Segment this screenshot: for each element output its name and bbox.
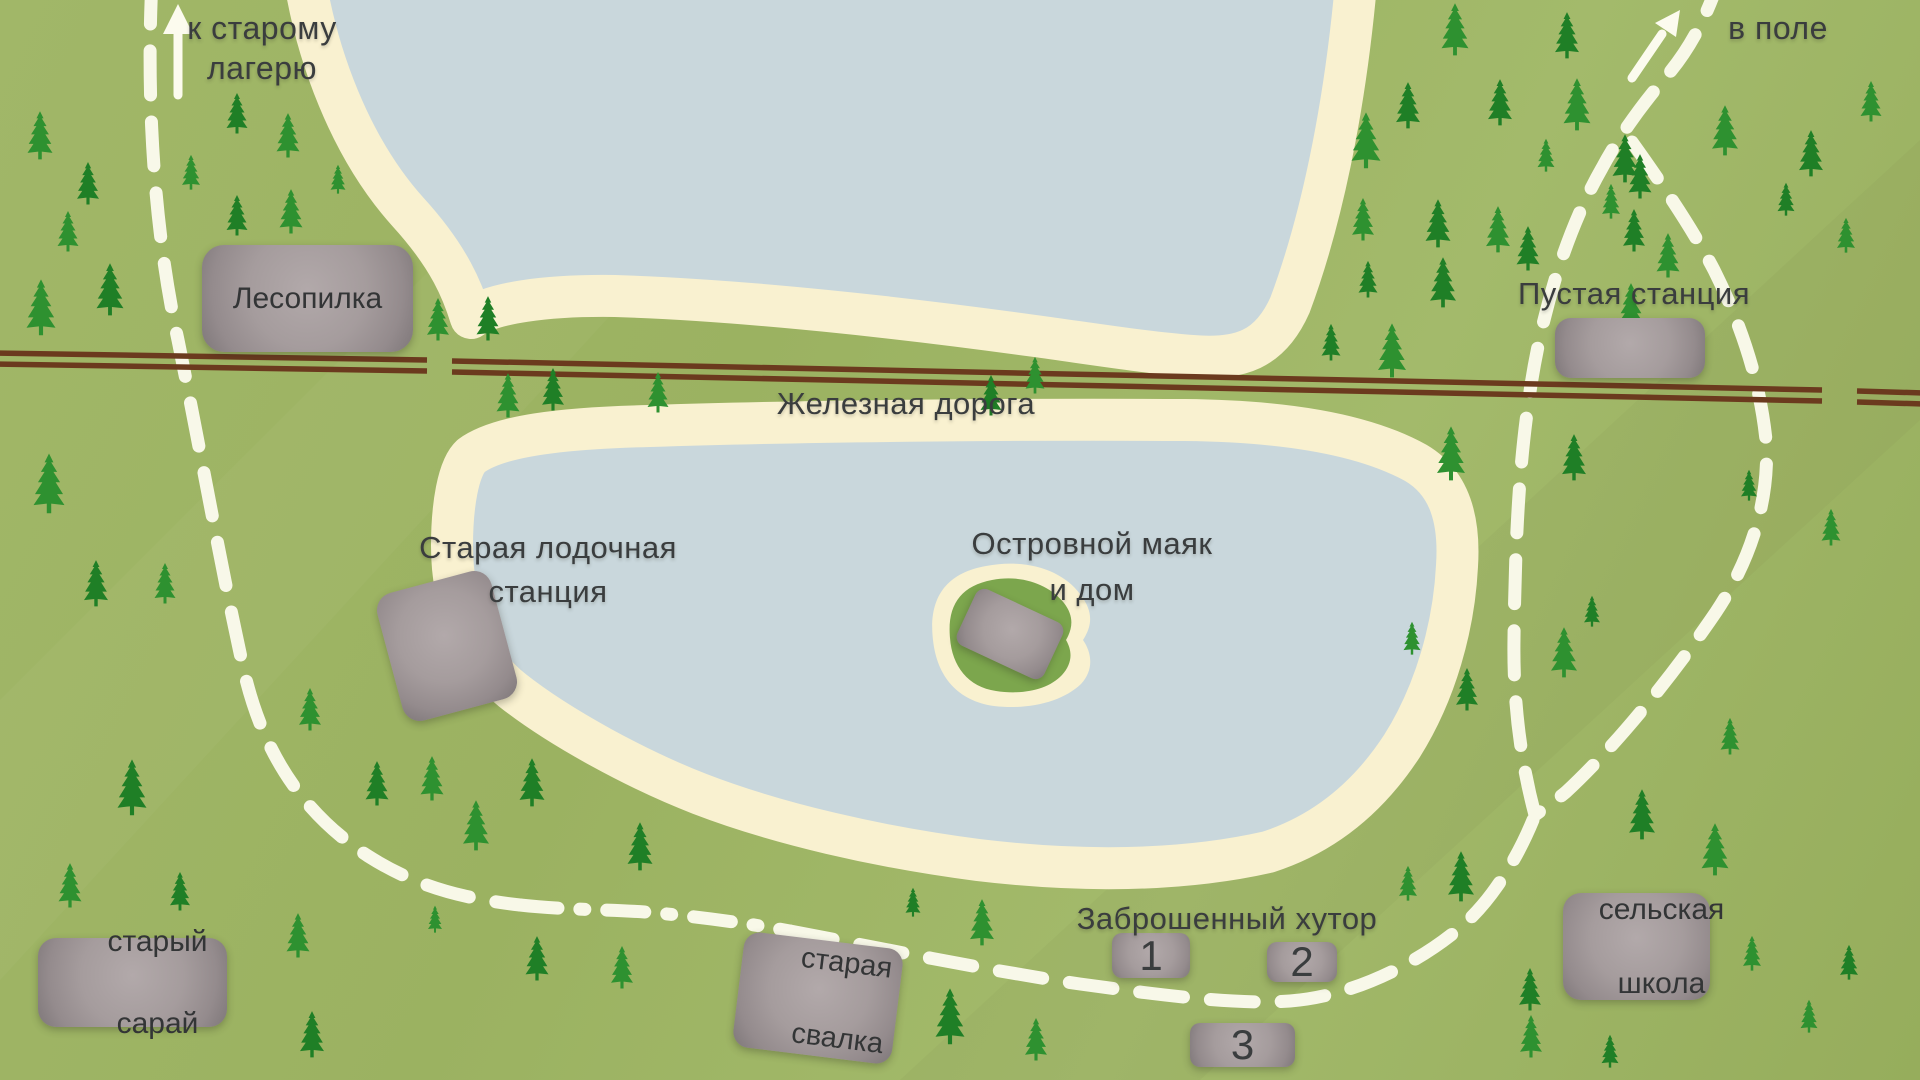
pine-tree-icon — [1520, 1015, 1542, 1057]
farmstead-building-2: 2 — [1267, 942, 1337, 982]
upper-lake — [302, 0, 1358, 357]
pine-tree-icon — [1426, 199, 1451, 247]
village-school-building: сельская школа — [1563, 893, 1710, 1000]
pine-tree-icon — [182, 155, 200, 190]
pine-tree-icon — [1822, 509, 1841, 546]
pine-tree-icon — [1378, 323, 1406, 377]
pine-tree-icon — [300, 1011, 324, 1057]
sawmill-label: Лесопилка — [233, 279, 382, 319]
arrow-to-field-shaft — [1632, 34, 1662, 78]
farmstead-building-3-number: 3 — [1231, 1021, 1254, 1069]
pine-tree-icon — [227, 195, 248, 236]
pine-tree-icon — [77, 162, 99, 204]
pine-tree-icon — [58, 211, 79, 252]
sawmill-building: Лесопилка — [202, 245, 413, 352]
pine-tree-icon — [1396, 82, 1420, 128]
railway-label: Железная дорога — [777, 382, 1035, 426]
pine-tree-icon — [526, 936, 549, 980]
pine-tree-icon — [1840, 945, 1858, 980]
pine-tree-icon — [1629, 789, 1655, 839]
route-south-dashdot — [520, 905, 790, 931]
old-dump-label-line2: свалка — [790, 1017, 885, 1060]
pine-tree-icon — [1442, 3, 1469, 55]
map-canvas: Лесопилка старый сарай старая свалка 1 2… — [0, 0, 1920, 1080]
pine-tree-icon — [1488, 79, 1512, 125]
pine-tree-icon — [463, 800, 489, 850]
pine-tree-icon — [97, 263, 124, 315]
old-barn-label-line2: сарай — [117, 1007, 199, 1040]
village-school-label-line1: сельская — [1599, 893, 1725, 926]
pine-tree-icon — [1623, 209, 1645, 251]
pine-tree-icon — [280, 189, 303, 233]
pine-tree-icon — [1352, 198, 1374, 240]
pine-tree-icon — [1721, 718, 1740, 755]
pine-tree-icon — [936, 988, 965, 1044]
pine-tree-icon — [520, 758, 545, 806]
pine-tree-icon — [299, 688, 321, 730]
pine-tree-icon — [1538, 139, 1555, 172]
to-old-camp-label: к старомулагерю — [187, 8, 336, 88]
pine-tree-icon — [1801, 1000, 1818, 1033]
pine-tree-icon — [28, 111, 53, 159]
farmstead-building-3: 3 — [1190, 1023, 1295, 1067]
pine-tree-icon — [1799, 130, 1823, 176]
village-school-label-line2: школа — [1618, 967, 1706, 1000]
pine-tree-icon — [227, 93, 248, 134]
old-dump-label-line1: старая — [799, 942, 894, 985]
pine-tree-icon — [287, 913, 310, 957]
pine-tree-icon — [1437, 426, 1465, 480]
pine-tree-icon — [628, 822, 653, 870]
old-barn-label-line1: старый — [107, 925, 207, 958]
pine-tree-icon — [611, 946, 633, 988]
pine-tree-icon — [428, 906, 442, 933]
pine-tree-icon — [1743, 936, 1761, 971]
pine-tree-icon — [1486, 206, 1510, 252]
pine-tree-icon — [27, 279, 56, 335]
pine-tree-icon — [970, 899, 994, 945]
old-barn-building: старый сарай — [38, 938, 227, 1027]
pine-tree-icon — [1861, 81, 1882, 122]
pine-tree-icon — [1602, 184, 1620, 219]
pine-tree-icon — [34, 453, 65, 513]
pine-tree-icon — [1657, 233, 1680, 277]
pine-tree-icon — [1555, 12, 1579, 58]
island-lighthouse-label: Островной маяки дом — [972, 521, 1213, 613]
pine-tree-icon — [1430, 257, 1456, 307]
pine-tree-icon — [1564, 78, 1591, 130]
empty-station-building — [1555, 318, 1705, 378]
empty-station-label: Пустая станция — [1518, 272, 1750, 316]
pine-tree-icon — [1322, 324, 1341, 361]
pine-tree-icon — [366, 761, 389, 805]
farmstead-building-2-number: 2 — [1290, 938, 1313, 986]
pine-tree-icon — [1602, 1035, 1619, 1068]
pine-tree-icon — [1517, 226, 1540, 270]
pine-tree-icon — [84, 560, 108, 606]
pine-tree-icon — [1712, 105, 1738, 155]
pine-tree-icon — [1519, 968, 1541, 1010]
pine-tree-icon — [421, 756, 444, 800]
pine-tree-icon — [277, 113, 300, 157]
old-boat-station-label: Старая лодочнаястанция — [419, 526, 677, 614]
pine-tree-icon — [1359, 261, 1378, 298]
pine-tree-icon — [1778, 183, 1795, 216]
abandoned-farmstead-label: Заброшенный хутор — [1077, 897, 1378, 941]
to-field-label: в поле — [1728, 6, 1828, 50]
pine-tree-icon — [906, 888, 921, 917]
pine-tree-icon — [331, 165, 346, 194]
pine-tree-icon — [1448, 851, 1474, 901]
old-dump-building: старая свалка — [732, 931, 905, 1066]
